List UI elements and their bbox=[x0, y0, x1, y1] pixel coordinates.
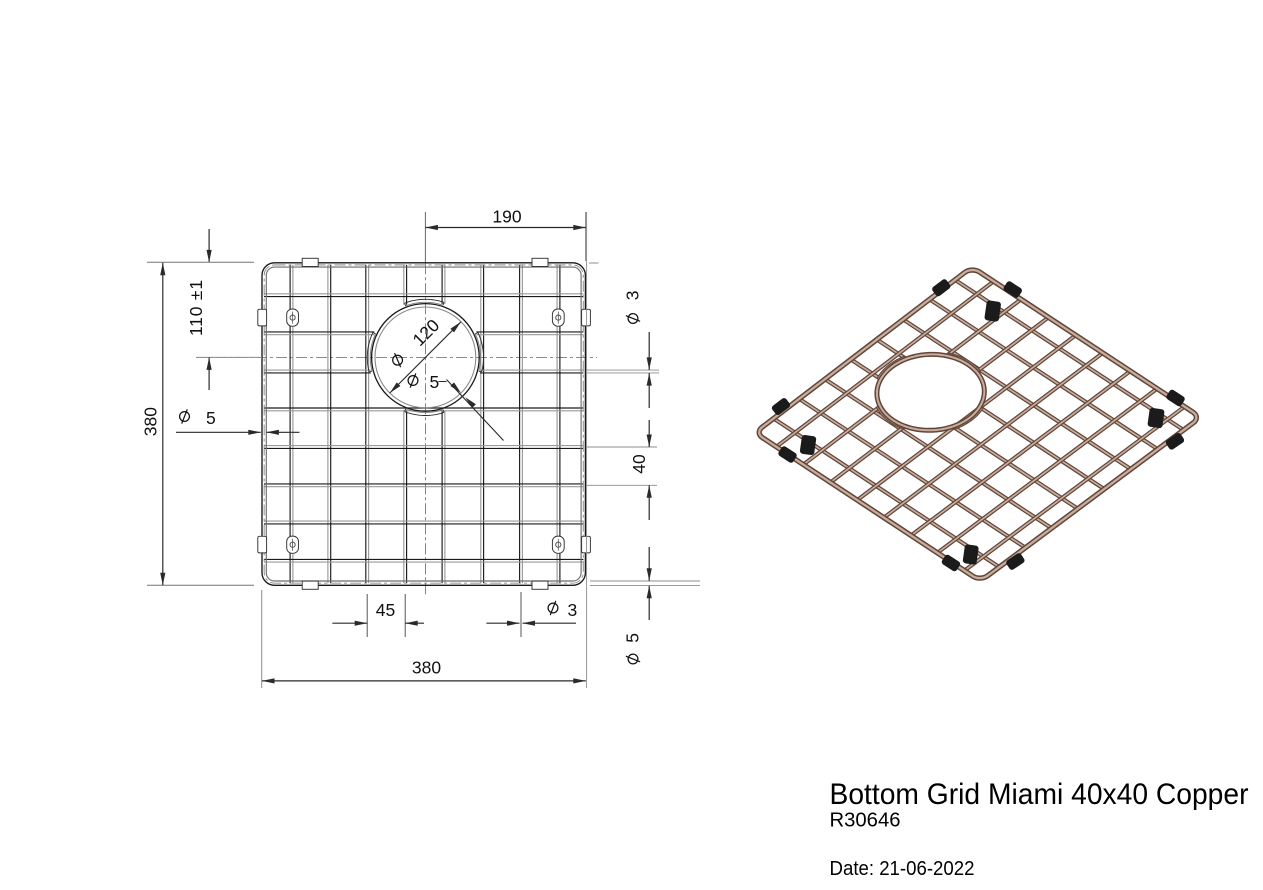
svg-text:Date: 21-06-2022: Date: 21-06-2022 bbox=[830, 857, 975, 880]
svg-text:3: 3 bbox=[568, 600, 578, 620]
svg-text:190: 190 bbox=[492, 207, 521, 227]
svg-text:5: 5 bbox=[206, 408, 216, 428]
svg-text:40: 40 bbox=[629, 454, 649, 474]
svg-text:5: 5 bbox=[430, 372, 440, 392]
svg-text:R30646: R30646 bbox=[830, 810, 901, 832]
svg-text:3: 3 bbox=[623, 291, 643, 301]
svg-text:5: 5 bbox=[623, 633, 643, 643]
svg-text:Bottom Grid Miami 40x40 Copper: Bottom Grid Miami 40x40 Copper bbox=[830, 778, 1249, 811]
svg-text:380: 380 bbox=[412, 658, 441, 678]
svg-text:45: 45 bbox=[376, 600, 395, 620]
svg-text:380: 380 bbox=[140, 407, 160, 436]
svg-text:110 ±1: 110 ±1 bbox=[186, 279, 206, 336]
